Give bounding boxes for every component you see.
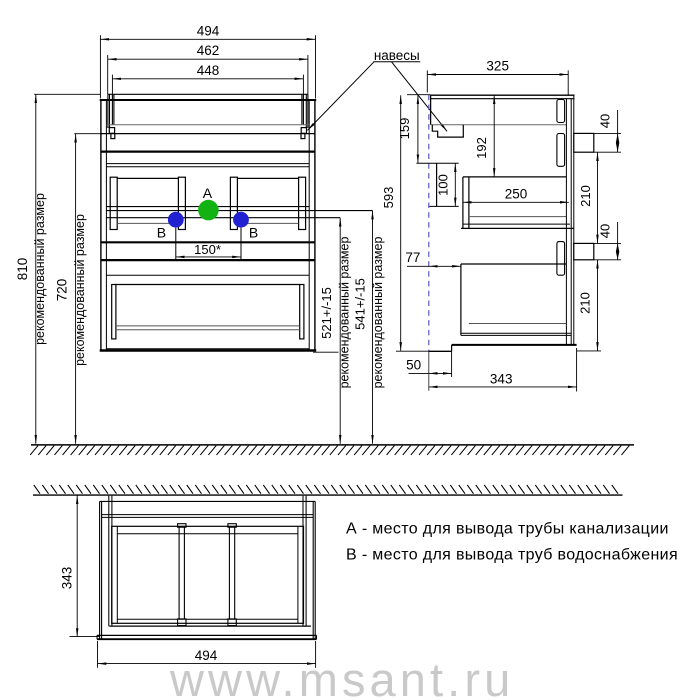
svg-text:50: 50 [406,358,421,373]
svg-text:210: 210 [578,185,593,207]
svg-text:325: 325 [486,59,509,74]
svg-text:рекомендованный размер: рекомендованный размер [73,214,87,366]
svg-text:рекомендованный размер: рекомендованный размер [33,193,47,345]
svg-text:521+/-15: 521+/-15 [319,287,334,339]
svg-text:462: 462 [197,43,220,58]
svg-text:В - место для вывода труб водо: В - место для вывода труб водоснабжения [346,547,678,564]
svg-text:150*: 150* [194,242,221,257]
svg-text:навесы: навесы [374,48,420,63]
svg-text:593: 593 [381,187,396,209]
svg-text:810: 810 [15,258,30,281]
svg-text:рекомендованный размер: рекомендованный размер [338,237,352,389]
svg-text:210: 210 [577,292,592,314]
svg-text:541+/-15: 541+/-15 [352,278,367,330]
svg-text:40: 40 [598,114,613,128]
svg-text:250: 250 [505,187,528,202]
svg-text:100: 100 [435,174,450,196]
svg-text:А - место для вывода трубы кан: А - место для вывода трубы канализации [346,521,669,538]
svg-text:рекомендованный размер: рекомендованный размер [371,237,385,389]
svg-text:448: 448 [197,63,220,78]
svg-text:В: В [157,224,166,240]
svg-text:77: 77 [405,250,420,265]
svg-text:192: 192 [474,137,489,159]
svg-text:159: 159 [397,118,412,140]
svg-text:343: 343 [490,371,513,386]
svg-text:720: 720 [55,279,70,302]
svg-text:А: А [203,185,213,201]
svg-text:343: 343 [60,567,75,590]
svg-text:40: 40 [598,224,613,238]
svg-text:494: 494 [197,23,220,38]
svg-text:В: В [249,224,258,240]
svg-text:www.msant.ru: www.msant.ru [169,653,514,700]
